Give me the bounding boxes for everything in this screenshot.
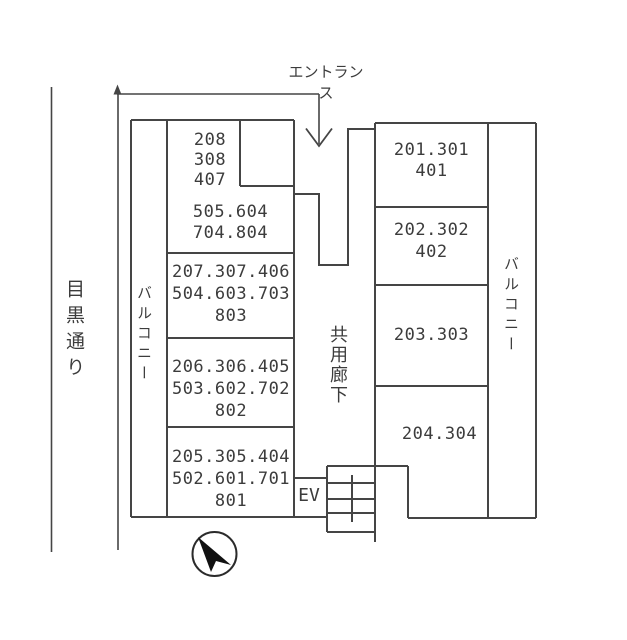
unit-floor-line: 204.304: [383, 424, 496, 444]
unit-floor-line: 201.301: [375, 140, 488, 161]
unit-stack-right-3: 203.303: [375, 325, 488, 345]
compass-icon: [193, 532, 237, 576]
unit-stack-left-5: 205.305.404 502.601.701 801: [167, 446, 295, 512]
unit-stack-left-1: 208 308 407: [175, 130, 245, 190]
unit-floor-line: 704.804: [167, 223, 294, 244]
unit-floor-line: 308: [175, 150, 245, 170]
unit-floor-line: 206.306.405: [167, 356, 295, 378]
street-label: 目黒通り: [61, 276, 88, 386]
balcony-right-label: バルコニー: [501, 251, 522, 361]
stairs-icon: [327, 466, 375, 532]
unit-floor-line: 205.305.404: [167, 446, 295, 468]
balcony-left-label: バルコニー: [134, 284, 155, 386]
unit-floor-line: 802: [167, 400, 295, 422]
unit-floor-line: 505.604: [167, 202, 294, 223]
unit-floor-line: 502.601.701: [167, 468, 295, 490]
unit-stack-left-4: 206.306.405 503.602.702 802: [167, 356, 295, 422]
unit-floor-line: 407: [175, 170, 245, 190]
unit-floor-line: 203.303: [375, 325, 488, 345]
unit-floor-line: 202.302: [375, 219, 488, 241]
unit-floor-line: 801: [167, 490, 295, 512]
unit-floor-line: 503.602.702: [167, 378, 295, 400]
entrance-label: エントランス: [286, 61, 366, 103]
unit-floor-line: 401: [375, 161, 488, 182]
floor-plan: エントランス 目黒通り バルコニー バルコニー 共用廊下 EV 208 308 …: [0, 0, 627, 640]
unit-stack-left-3: 207.307.406 504.603.703 803: [167, 261, 295, 327]
unit-floor-line: 208: [175, 130, 245, 150]
unit-floor-line: 504.603.703: [167, 283, 295, 305]
elevator-label: EV: [293, 485, 325, 506]
unit-floor-line: 207.307.406: [167, 261, 295, 283]
unit-stack-left-2: 505.604 704.804: [167, 202, 294, 244]
corridor-entrance-wall: [294, 129, 375, 265]
unit-floor-line: 803: [167, 305, 295, 327]
corridor-label: 共用廊下: [324, 320, 350, 410]
unit-stack-right-2: 202.302 402: [375, 219, 488, 263]
unit-floor-line: 402: [375, 241, 488, 263]
boundary-corner-arrow-icon: [114, 85, 122, 95]
unit-stack-right-4: 204.304: [383, 424, 496, 444]
unit-stack-right-1: 201.301 401: [375, 140, 488, 182]
